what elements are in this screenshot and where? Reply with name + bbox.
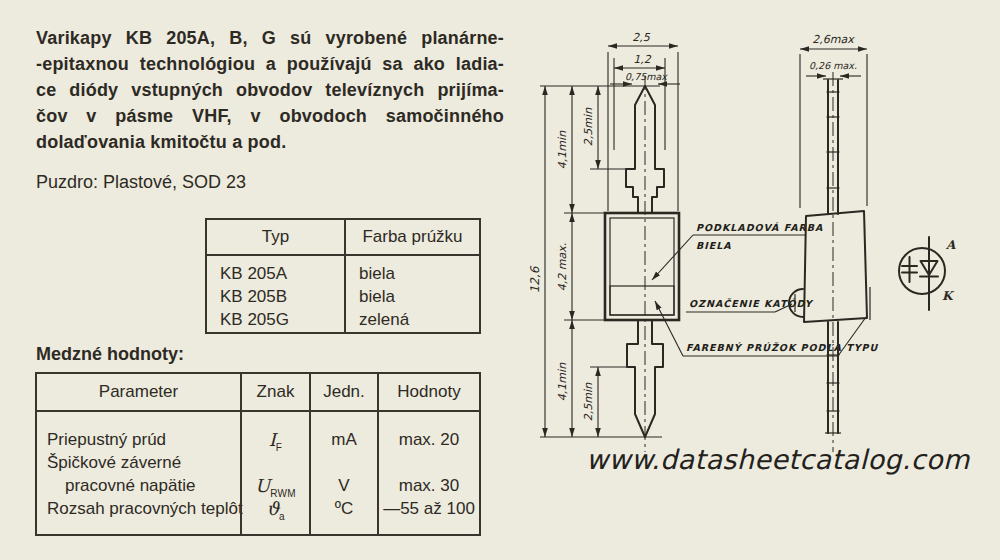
dim-label-4-2: 4,2 max. [556,243,569,291]
side-view: 2,6max 0,26 max. [789,33,870,452]
type-cell: KB 205A [207,256,344,286]
dim-label-0-75: 0,75max [625,71,668,82]
limits-value-column: max. 20 max. 30 —55 až 100 [377,412,479,534]
unit-cell: mA [311,428,377,451]
unit-cell: V [311,474,377,497]
intro-line: čov v pásme VHF, v obvodoch samočinného [36,103,504,129]
anode-label: A [945,238,956,252]
intro-line: Varikapy KB 205A, B, G sú vyrobené planá… [36,25,504,51]
parameter-cell: pracovné napätie [37,474,240,497]
limits-header-znak: Znak [240,374,309,412]
leader-base-color [652,235,693,280]
varicap-symbol: A K [899,237,956,310]
parameter-cell: Rozsah pracovných teplôt [37,497,240,520]
dim-label-2-5: 2,5 [632,31,650,44]
limits-parameter-column: Priepustný prúd Špičkové záverné pracovn… [37,412,240,534]
color-cell: biela [344,286,479,309]
type-cell: KB 205B [207,286,344,309]
dim-label-4-1-top: 4,1min [556,130,569,169]
watermark-url: www.datasheetcatalog.com [586,444,970,475]
dim-label-2-5-bot: 2,5min [582,382,595,421]
symbol-circle [899,248,945,294]
stripe-label: FAREBNÝ PRÚŽOK PODĽA TYPU [686,342,879,353]
type-table-header-farba: Farba prúžku [344,220,479,256]
cathode-label: K [942,289,955,303]
dim-label-2-6: 2,6max [812,33,855,46]
dim-label-2-5-top: 2,5min [582,107,595,146]
intro-paragraph: Varikapy KB 205A, B, G sú vyrobené planá… [36,25,504,155]
base-color-label-2: BIELA [696,240,732,251]
limits-header-parameter: Parameter [37,374,240,412]
color-cell: biela [344,256,479,286]
symbol-cell-empty [242,451,309,474]
unit-cell: ºC [311,497,377,520]
parameter-cell: Priepustný prúd [37,428,240,451]
value-cell: max. 30 [379,474,479,497]
limits-title: Medzné hodnoty: [36,344,184,365]
symbol-cell: URWM [242,474,309,497]
callouts: PODKLADOVÁ FARBA BIELA OZNAČENIE KATÓDY … [652,222,879,356]
value-cell: —55 až 100 [379,497,479,520]
limits-header-jedn: Jedn. [309,374,377,412]
type-table-header-typ: Typ [207,220,344,256]
intro-line: ce diódy vstupných obvodov televíznych p… [36,77,504,103]
intro-line: dolaďovania kmitočtu a pod. [36,129,504,155]
color-cell: zelená [344,309,479,332]
package-line: Puzdro: Plastové, SOD 23 [36,172,246,193]
dim-label-0-26: 0,26 max. [809,60,857,71]
intro-line: -epitaxnou technológiou a používajú sa a… [36,51,504,77]
dim-label-4-1-bot: 4,1min [556,362,569,401]
symbol-cell: IF [242,428,309,451]
base-color-label: PODKLADOVÁ FARBA [696,222,823,233]
limits-symbol-column: IF URWM ϑa [240,412,309,534]
package-drawing: 2,5 1,2 0,75max 12,6 4,1min 4,2 max. 4,1… [520,0,1000,470]
value-cell: max. 20 [379,428,479,451]
type-cell: KB 205G [207,309,344,332]
front-view: 2,5 1,2 0,75max 12,6 4,1min 4,2 max. 4,1… [528,31,680,452]
unit-cell-empty [311,451,377,474]
symbol-cell: ϑa [242,497,309,520]
limits-unit-column: mA V ºC [309,412,377,534]
parameter-cell: Špičkové záverné [37,451,240,474]
dim-label-1-2: 1,2 [633,53,651,66]
datasheet-page: Varikapy KB 205A, B, G sú vyrobené planá… [0,0,1000,560]
color-stripe-hatch [610,286,674,315]
body-outline [605,213,679,320]
limits-table: Parameter Znak Jedn. Hodnoty Priepustný … [35,372,481,536]
value-cell-empty [379,451,479,474]
dim-label-12-6: 12,6 [528,265,542,293]
type-table: Typ Farba prúžku KB 205A biela KB 205B b… [205,218,481,334]
limits-header-hodnoty: Hodnoty [377,374,479,412]
